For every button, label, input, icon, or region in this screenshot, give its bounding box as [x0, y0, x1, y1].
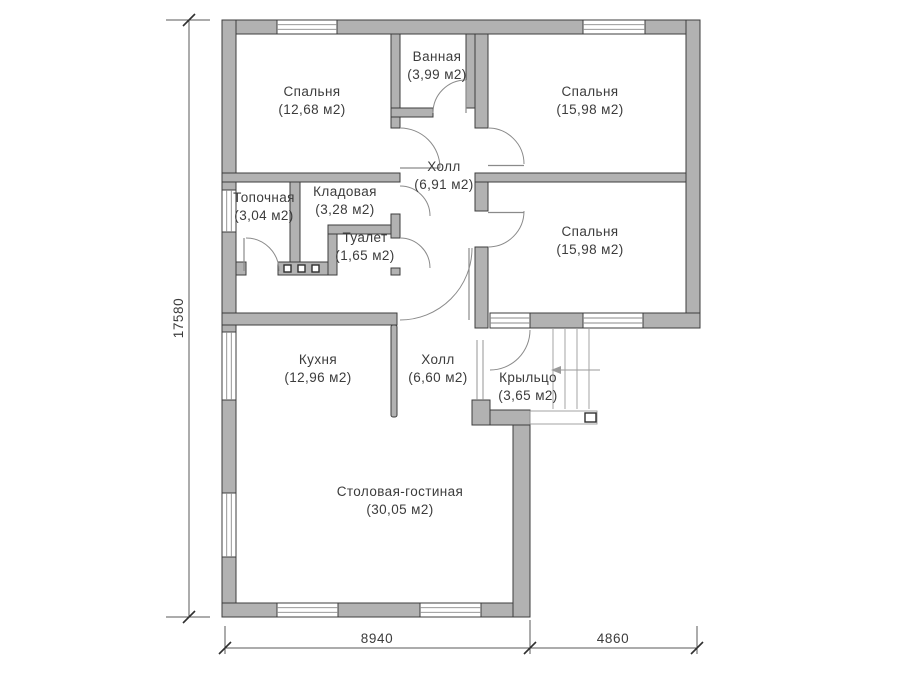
room-label-bathroom: Ванная (3,99 м2)	[407, 49, 466, 82]
room-name: Топочная	[233, 190, 295, 205]
door-arc	[433, 80, 466, 113]
window	[583, 313, 643, 328]
wall-bathroom-east	[466, 34, 475, 108]
room-area: (15,98 м2)	[556, 242, 623, 257]
room-area: (15,98 м2)	[556, 102, 623, 117]
room-name: Спальня	[561, 84, 618, 99]
wall-corridor-south	[222, 313, 397, 325]
room-label-porch: Крыльцо (3,65 м2)	[498, 370, 557, 403]
room-label-hall-upper: Холл (6,91 м2)	[414, 159, 473, 192]
wall-kitchen-hall-divider	[391, 325, 397, 417]
room-label-bedroom-mid-right: Спальня (15,98 м2)	[556, 224, 623, 257]
wall-right-wing-south	[530, 313, 583, 328]
door-arc	[244, 238, 279, 271]
wall-bedroom3-west	[475, 182, 488, 211]
wall-hall-west	[391, 268, 400, 275]
room-name: Крыльцо	[499, 370, 557, 385]
room-label-bedroom-top-left: Спальня (12,68 м2)	[278, 84, 345, 117]
wall-bathroom-south	[391, 108, 433, 117]
room-area: (30,05 м2)	[366, 502, 433, 517]
room-area: (3,04 м2)	[234, 208, 293, 223]
door-arc	[488, 211, 524, 247]
wall-porch-step	[490, 410, 530, 425]
room-name: Ванная	[413, 49, 462, 64]
wall-bedroom1-south	[222, 173, 400, 182]
dimension-value-main-width: 8940	[361, 631, 393, 646]
door-arc	[400, 248, 472, 320]
wall-bedroom3-west	[475, 247, 488, 328]
door-arc	[488, 128, 524, 166]
room-area: (6,60 м2)	[408, 370, 467, 385]
room-area: (3,65 м2)	[498, 388, 557, 403]
window	[222, 332, 236, 400]
door-arc	[400, 238, 430, 268]
window	[277, 20, 337, 34]
wall-right-wing-south	[643, 313, 700, 328]
room-label-storage: Кладовая (3,28 м2)	[313, 184, 377, 217]
room-name: Столовая-гостиная	[337, 484, 464, 499]
floor-plan-drawing: Спальня (12,68 м2) Ванная (3,99 м2) Спал…	[0, 0, 899, 675]
wall-bedroom2-west	[475, 34, 488, 128]
wall-porch-step	[472, 400, 490, 425]
room-area: (12,68 м2)	[278, 102, 345, 117]
floor-plan-canvas: Спальня (12,68 м2) Ванная (3,99 м2) Спал…	[0, 0, 899, 675]
window	[222, 493, 236, 557]
dimension-value-height: 17580	[171, 298, 186, 339]
porch-step-edge	[530, 411, 597, 424]
wall-top	[337, 20, 583, 34]
room-label-dining-living: Столовая-гостиная (30,05 м2)	[337, 484, 464, 517]
wall-bottom	[338, 603, 420, 617]
window	[277, 603, 338, 617]
room-name: Кладовая	[313, 184, 377, 199]
dimension-left: 17580	[166, 14, 210, 623]
wall-bottom	[222, 603, 277, 617]
room-label-toilet: Туалет (1,65 м2)	[335, 230, 394, 263]
room-name: Туалет	[342, 230, 387, 245]
wall-left	[222, 400, 236, 493]
chimney-flue-squares	[284, 265, 319, 272]
room-labels: Спальня (12,68 м2) Ванная (3,99 м2) Спал…	[233, 49, 624, 517]
dimension-value-porch-width: 4860	[597, 631, 629, 646]
room-area: (3,99 м2)	[407, 67, 466, 82]
room-name: Холл	[427, 159, 460, 174]
wall-bedrooms-divider	[475, 173, 686, 182]
room-name: Спальня	[283, 84, 340, 99]
room-label-boiler-room: Топочная (3,04 м2)	[233, 190, 295, 223]
wall-dining-east	[513, 425, 530, 617]
room-name: Спальня	[561, 224, 618, 239]
wall-right	[686, 20, 700, 328]
room-label-bedroom-top-right: Спальня (15,98 м2)	[556, 84, 623, 117]
room-area: (12,96 м2)	[284, 370, 351, 385]
wall-left	[222, 20, 236, 190]
room-area: (6,91 м2)	[414, 177, 473, 192]
window	[420, 603, 481, 617]
room-label-hall-lower: Холл (6,60 м2)	[408, 352, 467, 385]
room-name: Холл	[421, 352, 454, 367]
room-name: Кухня	[299, 352, 337, 367]
dimension-bottom: 8940 4860	[219, 620, 703, 654]
room-label-kitchen: Кухня (12,96 м2)	[284, 352, 351, 385]
window	[583, 20, 645, 34]
room-area: (1,65 м2)	[335, 248, 394, 263]
room-area: (3,28 м2)	[315, 202, 374, 217]
stairs-direction-arrow	[551, 366, 600, 374]
wall-hall-west	[391, 214, 400, 238]
